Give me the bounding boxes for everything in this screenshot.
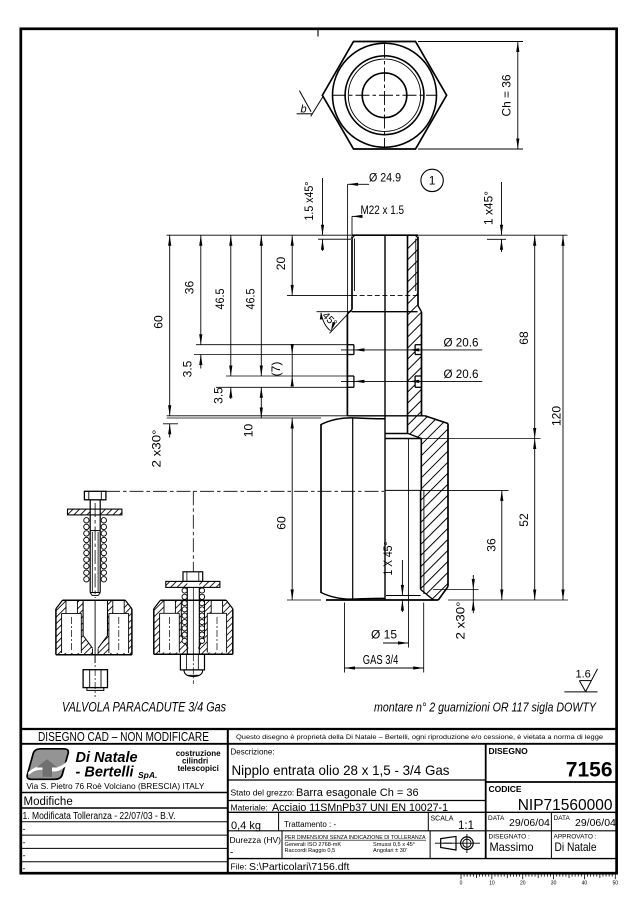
svg-text:VALVOLA PARACADUTE 3/4 Gas: VALVOLA PARACADUTE 3/4 Gas bbox=[62, 700, 226, 715]
svg-text:Ø 20.6: Ø 20.6 bbox=[444, 336, 479, 350]
svg-text:NIP71560000: NIP71560000 bbox=[518, 797, 613, 814]
svg-text:30: 30 bbox=[551, 881, 557, 887]
svg-text:29/06/04: 29/06/04 bbox=[509, 817, 550, 829]
svg-text:Di Natale: Di Natale bbox=[555, 840, 597, 854]
svg-text:Materiale:: Materiale: bbox=[231, 802, 268, 812]
svg-text:46.5: 46.5 bbox=[244, 288, 258, 309]
svg-text:Generali ISO 2768-mK: Generali ISO 2768-mK bbox=[285, 842, 342, 848]
svg-text:Descrizione:: Descrizione: bbox=[231, 747, 275, 756]
svg-text:DISEGNO: DISEGNO bbox=[489, 746, 529, 756]
svg-text:20: 20 bbox=[274, 257, 288, 271]
svg-text:-: - bbox=[23, 864, 26, 874]
svg-text:Raccordi Raggio 0,5: Raccordi Raggio 0,5 bbox=[285, 848, 336, 854]
svg-text:(7): (7) bbox=[269, 362, 283, 377]
svg-text:3.5: 3.5 bbox=[212, 387, 226, 404]
svg-text:SCALA: SCALA bbox=[431, 816, 454, 823]
svg-text:DATA: DATA bbox=[488, 815, 505, 822]
svg-text:50: 50 bbox=[613, 881, 619, 887]
svg-text:Nipplo entrata olio 28 x 1,5 -: Nipplo entrata olio 28 x 1,5 - 3/4 Gas bbox=[232, 762, 450, 778]
svg-text:10: 10 bbox=[242, 424, 256, 438]
svg-text:36: 36 bbox=[485, 538, 499, 552]
svg-text:GAS 3/4: GAS 3/4 bbox=[363, 653, 399, 667]
svg-text:Acciaio 11SMnPb37 UNI EN 1002: Acciaio 11SMnPb37 UNI EN 10027-1 bbox=[272, 802, 448, 814]
svg-text:10: 10 bbox=[489, 881, 495, 887]
svg-text:1 X 45°: 1 X 45° bbox=[381, 541, 395, 575]
svg-text:Ø 15: Ø 15 bbox=[371, 628, 397, 642]
svg-text:Barra esagonale Ch = 36: Barra esagonale Ch = 36 bbox=[296, 787, 419, 799]
svg-text:60: 60 bbox=[152, 315, 166, 329]
svg-text:68: 68 bbox=[517, 331, 531, 345]
svg-text:52: 52 bbox=[517, 513, 531, 527]
svg-text:- Bertelli: - Bertelli bbox=[76, 765, 135, 781]
svg-text:Durezza (HV): Durezza (HV) bbox=[230, 835, 282, 845]
svg-text:Via S. Pietro 76 Roè Volcia: Via S. Pietro 76 Roè Volciano (BRESCIA) … bbox=[26, 781, 204, 791]
svg-text:-: - bbox=[23, 837, 26, 847]
svg-text:1.5 x45°: 1.5 x45° bbox=[304, 182, 316, 221]
svg-text:1: 1 bbox=[429, 174, 436, 188]
svg-text:36: 36 bbox=[183, 281, 197, 295]
svg-text:Angolari ± 30': Angolari ± 30' bbox=[373, 848, 407, 854]
svg-text:DISEGNO CAD – NON MODIFICARE: DISEGNO CAD – NON MODIFICARE bbox=[38, 730, 209, 744]
svg-text:-: - bbox=[23, 824, 26, 834]
svg-text:SpA.: SpA. bbox=[138, 770, 157, 780]
svg-text:telescopici: telescopici bbox=[177, 764, 218, 773]
svg-text:0,4 kg: 0,4 kg bbox=[231, 820, 261, 832]
svg-text:CODICE: CODICE bbox=[489, 784, 522, 794]
svg-text:46.5: 46.5 bbox=[213, 288, 227, 309]
svg-text:40: 40 bbox=[582, 881, 588, 887]
svg-text:b: b bbox=[301, 104, 307, 116]
svg-text:60: 60 bbox=[275, 516, 289, 530]
svg-text:File:: File: bbox=[231, 861, 247, 871]
svg-text:2 x30°: 2 x30° bbox=[150, 429, 164, 467]
svg-text:Ø 20.6: Ø 20.6 bbox=[444, 367, 479, 381]
svg-text:120: 120 bbox=[550, 406, 564, 426]
svg-text:montare n° 2 guarnizioni OR 11: montare n° 2 guarnizioni OR 117 sigla DO… bbox=[374, 700, 597, 715]
svg-text:Trattamento : -: Trattamento : - bbox=[284, 820, 337, 829]
svg-text:-: - bbox=[23, 851, 26, 861]
svg-text:S:\Particolari\7156.dft: S:\Particolari\7156.dft bbox=[249, 861, 349, 873]
svg-text:Ø 24.9: Ø 24.9 bbox=[369, 171, 401, 185]
svg-text:3.5: 3.5 bbox=[181, 360, 195, 377]
svg-text:Questo disegno è proprietà del: Questo disegno è proprietà della Di Nata… bbox=[236, 734, 603, 741]
svg-text:-: - bbox=[230, 848, 233, 859]
svg-text:0: 0 bbox=[460, 881, 463, 887]
svg-text:Massimo: Massimo bbox=[490, 840, 534, 854]
svg-text:1. Modificata Tolleranza - 22/: 1. Modificata Tolleranza - 22/07/03 - B.… bbox=[23, 811, 176, 822]
svg-text:7156: 7156 bbox=[566, 759, 613, 782]
svg-text:2 x30°: 2 x30° bbox=[454, 601, 468, 639]
svg-text:Smussi 0,5 x 45°: Smussi 0,5 x 45° bbox=[373, 842, 415, 848]
svg-text:Ch = 36: Ch = 36 bbox=[500, 74, 514, 116]
svg-text:Stato del grezzo:: Stato del grezzo: bbox=[231, 787, 295, 797]
svg-text:Di Natale: Di Natale bbox=[76, 750, 138, 766]
svg-text:Modifiche: Modifiche bbox=[24, 796, 73, 808]
svg-text:1.6: 1.6 bbox=[576, 669, 591, 681]
svg-text:M22 x 1.5: M22 x 1.5 bbox=[361, 203, 405, 217]
svg-text:20: 20 bbox=[520, 881, 526, 887]
svg-text:1 x45°: 1 x45° bbox=[484, 191, 496, 225]
svg-text:1:1: 1:1 bbox=[458, 820, 474, 832]
svg-text:DATA: DATA bbox=[554, 815, 571, 822]
svg-text:29/06/04: 29/06/04 bbox=[575, 817, 616, 829]
